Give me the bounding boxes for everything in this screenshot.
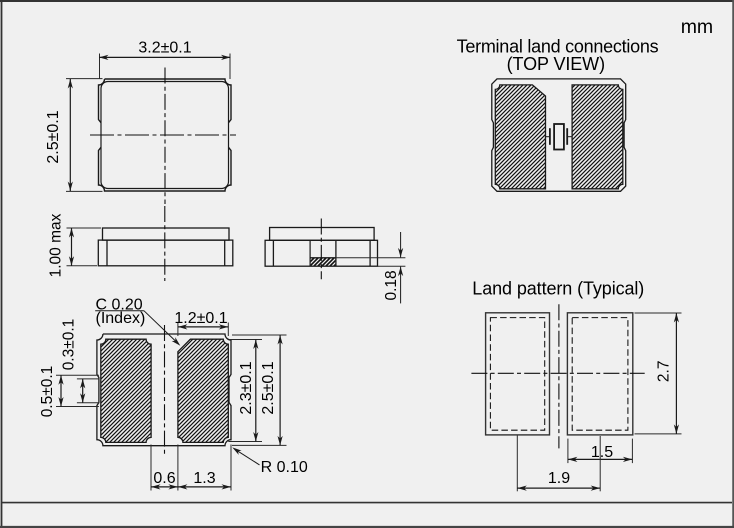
svg-text:2.7: 2.7 xyxy=(656,361,673,383)
svg-text:1.2±0.1: 1.2±0.1 xyxy=(174,310,227,327)
svg-text:2.5±0.1: 2.5±0.1 xyxy=(45,110,62,163)
svg-text:(Index): (Index) xyxy=(96,310,146,327)
svg-text:Land pattern (Typical): Land pattern (Typical) xyxy=(472,278,644,298)
svg-text:1.00 max: 1.00 max xyxy=(48,213,65,277)
svg-text:(TOP VIEW): (TOP VIEW) xyxy=(507,54,605,74)
svg-text:1.3: 1.3 xyxy=(193,470,215,487)
svg-text:0.6: 0.6 xyxy=(153,470,175,487)
svg-text:mm: mm xyxy=(681,16,714,38)
svg-text:1.5: 1.5 xyxy=(591,444,613,461)
svg-text:3.2±0.1: 3.2±0.1 xyxy=(138,39,191,56)
svg-text:R 0.10: R 0.10 xyxy=(261,459,308,476)
svg-text:0.3±0.1: 0.3±0.1 xyxy=(61,319,78,371)
svg-text:0.5±0.1: 0.5±0.1 xyxy=(39,366,56,418)
svg-text:2.3±0.1: 2.3±0.1 xyxy=(238,361,255,414)
svg-text:0.18: 0.18 xyxy=(383,270,400,300)
svg-text:2.5±0.1: 2.5±0.1 xyxy=(260,361,277,414)
svg-text:1.9: 1.9 xyxy=(548,470,570,487)
